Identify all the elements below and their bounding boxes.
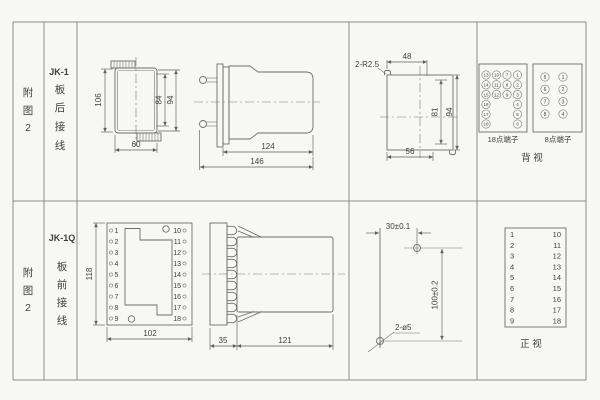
terminal-numbers-18: 131071 141182 151293 164 175 186: [483, 73, 519, 127]
svg-text:16: 16: [553, 295, 561, 304]
jk1-panel-cutout: 2-R2.5 48 81 94 56: [355, 52, 460, 161]
svg-text:11: 11: [553, 241, 561, 250]
jk1q-drilling-plan: 30±0.1 100±0.2 2-ø5: [366, 222, 462, 352]
svg-text:3: 3: [562, 99, 565, 105]
svg-text:16: 16: [173, 294, 181, 301]
table-frame: [13, 22, 586, 380]
svg-text:7: 7: [544, 99, 547, 105]
jk1-top-view: 106 84 94 60: [94, 57, 180, 153]
dim-121: 121: [278, 336, 292, 345]
svg-text:9: 9: [506, 92, 509, 97]
front-right-dots: [183, 229, 186, 320]
jk1q-front-view: 1 2 3 4 5 6 7 8 9 10 11 12 13 14 15 16 1…: [85, 223, 192, 342]
svg-text:8: 8: [115, 305, 119, 312]
rear-view-label: 背 视: [521, 152, 543, 164]
svg-text:4: 4: [562, 112, 565, 118]
model-label: JK-1: [49, 67, 69, 77]
fig-label-char: 附: [23, 266, 34, 279]
dim-48: 48: [403, 52, 412, 61]
terminal-numbers-8: 51 62 73 84: [544, 75, 565, 118]
table-right-numbers: 10 11 12 13 14 15 16 17 18: [553, 230, 561, 325]
wiring-label-char: 线: [55, 139, 66, 152]
jk1q-terminal-table: 1 2 3 4 5 6 7 8 9 10 11 12 13 14 15 16 1…: [505, 228, 566, 350]
terminal-block-top: [111, 61, 135, 68]
svg-text:8: 8: [510, 306, 514, 315]
terminal-block-bottom: [137, 133, 161, 141]
svg-text:4: 4: [115, 261, 119, 268]
dim-118: 118: [85, 267, 94, 280]
fig-label-char: 图: [23, 105, 34, 117]
svg-text:2: 2: [510, 241, 514, 250]
svg-text:5: 5: [510, 273, 514, 282]
wiring-label-char: 板: [55, 83, 66, 96]
r2.5-slot-top: [385, 71, 391, 76]
terminal-diagram-8pt: 51 62 73 84 8点端子: [533, 64, 582, 144]
wiring-label-char: 板: [57, 260, 68, 273]
svg-text:6: 6: [510, 284, 514, 293]
dim-124: 124: [261, 142, 275, 151]
svg-text:6: 6: [115, 283, 119, 290]
svg-text:10: 10: [553, 230, 561, 239]
front-left-dots: [109, 229, 112, 320]
svg-text:11: 11: [174, 239, 181, 246]
svg-text:3: 3: [510, 252, 514, 261]
relay-outline: [125, 229, 172, 316]
svg-text:5: 5: [544, 75, 547, 81]
r2.5-slot-bottom: [450, 150, 456, 155]
wiring-label-char: 线: [57, 314, 68, 327]
svg-text:18: 18: [173, 316, 181, 323]
svg-text:2: 2: [516, 83, 519, 88]
svg-text:15: 15: [173, 283, 181, 290]
dim-84: 84: [155, 95, 164, 104]
jk1q-side-view: 35 121: [202, 223, 345, 350]
svg-text:15: 15: [483, 92, 489, 97]
svg-text:10: 10: [494, 73, 500, 78]
svg-text:18: 18: [483, 122, 489, 127]
svg-text:1: 1: [562, 75, 565, 81]
jk1-side-view: 124 146: [194, 64, 320, 170]
terminal-diagram-18pt: 131071 141182 151293 164 175 186 18点端子: [479, 64, 527, 144]
svg-text:13: 13: [173, 261, 181, 268]
fig-label-char: 图: [23, 285, 34, 297]
svg-text:10: 10: [173, 228, 181, 235]
svg-text:16: 16: [483, 102, 489, 107]
dim-94: 94: [166, 95, 175, 104]
svg-text:8: 8: [506, 83, 509, 88]
svg-text:13: 13: [483, 73, 489, 78]
dim-102: 102: [143, 329, 157, 338]
dim-100: 100±0.2: [431, 280, 440, 309]
note-2-phi5: 2-ø5: [395, 323, 412, 332]
wiring-label-char: 接: [57, 296, 68, 309]
dim-35: 35: [219, 336, 228, 345]
svg-text:2: 2: [562, 87, 565, 93]
svg-text:2: 2: [115, 239, 119, 246]
svg-text:3: 3: [516, 92, 519, 97]
svg-text:4: 4: [516, 102, 519, 107]
technical-drawing: 附 图 2 JK-1 板 后 接 线 附 图 2 JK-1Q 板 前 接 线: [0, 0, 600, 400]
svg-text:6: 6: [516, 122, 519, 127]
front-left-numbers: 1 2 3 4 5 6 7 8 9: [115, 228, 119, 323]
svg-text:13: 13: [553, 262, 561, 271]
wiring-label-char: 前: [57, 278, 68, 291]
svg-text:1: 1: [510, 230, 514, 239]
svg-text:7: 7: [115, 294, 119, 301]
dim-94-cutout: 94: [445, 107, 454, 116]
svg-text:12: 12: [553, 252, 561, 261]
front-right-numbers: 10 11 12 13 14 15 16 17 18: [173, 228, 181, 323]
svg-text:7: 7: [506, 73, 509, 78]
svg-text:14: 14: [173, 272, 181, 279]
dim-106: 106: [94, 93, 103, 107]
fig-label-char: 附: [23, 86, 34, 99]
svg-text:14: 14: [483, 83, 489, 88]
dim-56: 56: [406, 147, 415, 156]
svg-text:6: 6: [544, 87, 547, 93]
svg-text:7: 7: [510, 295, 514, 304]
svg-text:5: 5: [115, 272, 119, 279]
svg-text:8: 8: [544, 112, 547, 118]
row2-caption: 附 图 2 JK-1Q 板 前 接 线: [23, 233, 76, 327]
svg-text:17: 17: [483, 112, 489, 117]
mounting-hole-bottom: [128, 316, 134, 322]
svg-text:12: 12: [173, 250, 181, 257]
svg-text:14: 14: [553, 273, 561, 282]
fig-label-char: 2: [25, 122, 31, 134]
dim-30: 30±0.1: [386, 222, 411, 231]
front-view-label: 正 视: [520, 338, 542, 350]
svg-text:9: 9: [510, 316, 514, 325]
svg-text:12: 12: [494, 92, 500, 97]
svg-text:18: 18: [553, 316, 561, 325]
svg-text:17: 17: [553, 306, 561, 315]
fig-label-char: 2: [25, 302, 31, 314]
svg-text:1: 1: [115, 228, 119, 235]
svg-text:3: 3: [115, 250, 119, 257]
label-8pt: 8点端子: [545, 134, 572, 144]
row1-caption: 附 图 2 JK-1 板 后 接 线: [23, 67, 69, 152]
svg-text:15: 15: [553, 284, 561, 293]
svg-text:11: 11: [494, 83, 499, 88]
dim-146: 146: [250, 157, 264, 166]
model-label: JK-1Q: [49, 233, 76, 243]
svg-text:17: 17: [173, 305, 181, 312]
wiring-label-char: 后: [55, 102, 66, 114]
svg-text:5: 5: [516, 112, 519, 117]
drawing-sheet: 附 图 2 JK-1 板 后 接 线 附 图 2 JK-1Q 板 前 接 线: [0, 0, 600, 400]
label-18pt: 18点端子: [488, 134, 519, 144]
svg-text:1: 1: [516, 73, 519, 78]
svg-text:9: 9: [115, 316, 119, 323]
dim-81: 81: [431, 107, 440, 116]
svg-text:4: 4: [510, 262, 514, 271]
mounting-hole-top: [163, 226, 169, 232]
note-2-r2-5: 2-R2.5: [355, 60, 380, 69]
terminal-circles-18: [482, 71, 522, 128]
table-left-numbers: 1 2 3 4 5 6 7 8 9: [510, 230, 514, 325]
wiring-label-char: 接: [55, 120, 66, 133]
terminal-strip: [227, 226, 237, 322]
dim-60: 60: [132, 140, 141, 149]
